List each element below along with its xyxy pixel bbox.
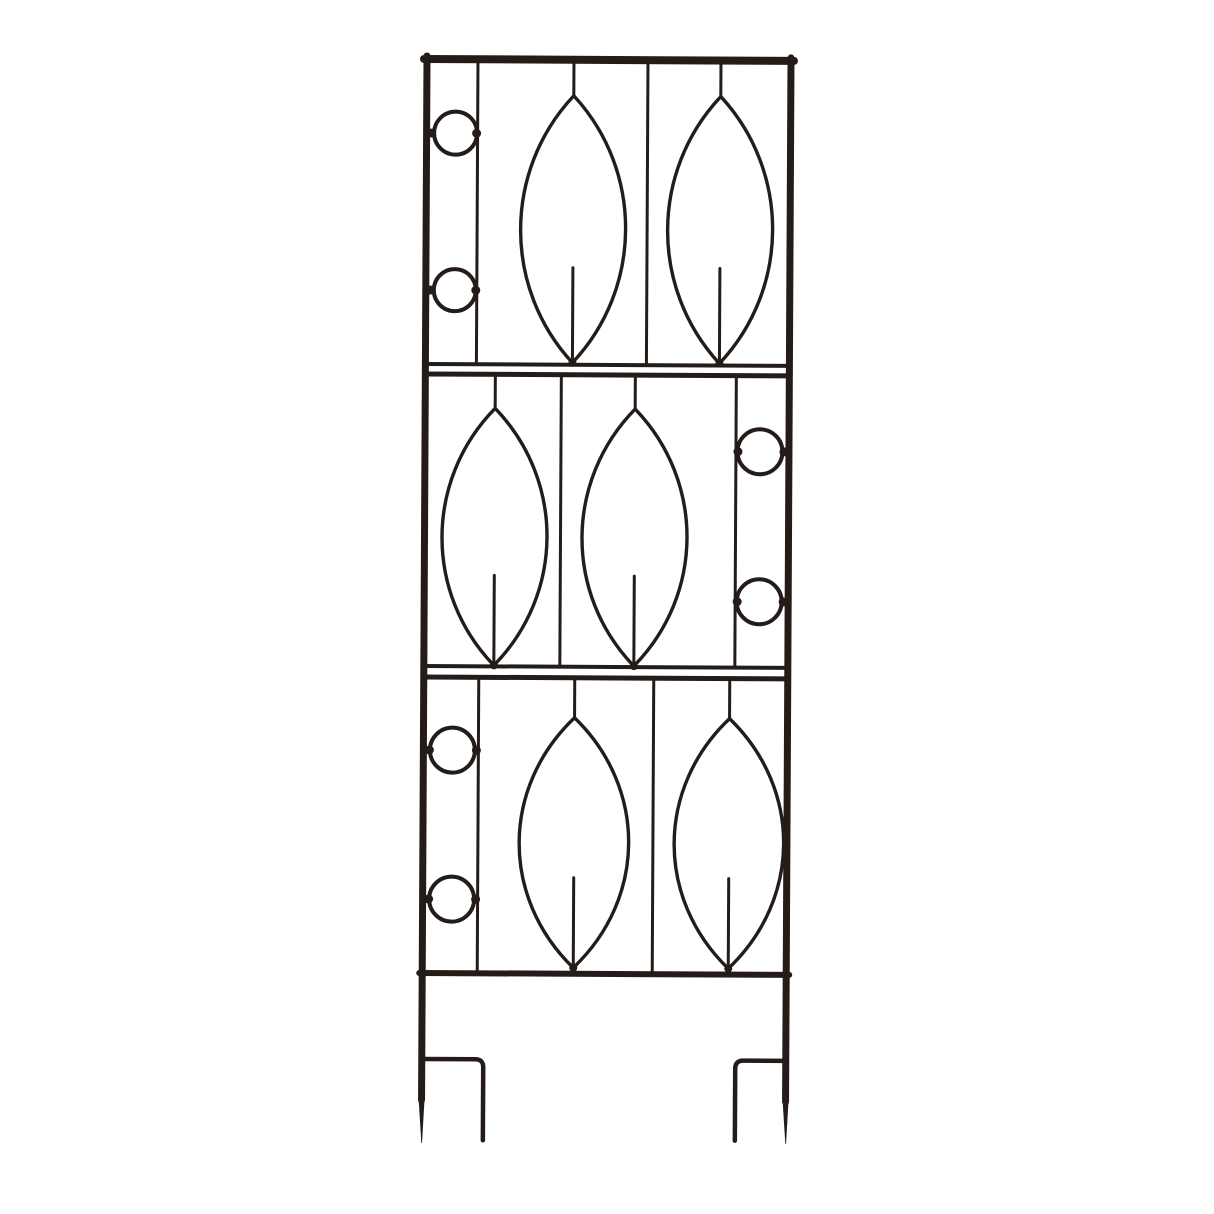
weld-dot [568, 359, 576, 367]
photo-canvas [0, 0, 1214, 1214]
frame-top-rail [424, 59, 794, 61]
panel-middle-bottom-rail [424, 666, 788, 668]
panel-middle-divider-right [735, 378, 737, 666]
trellis-photo [0, 0, 1214, 1214]
weld-dot [715, 360, 723, 368]
photo-background [0, 0, 1214, 1214]
panel-bottom-divider-right [652, 681, 654, 971]
weld-dot [426, 285, 435, 294]
weld-dot [472, 129, 481, 138]
panel-top-divider-right [646, 64, 648, 363]
weld-dot [425, 745, 434, 754]
weld-dot [427, 129, 436, 138]
panel-top-divider-left [476, 63, 478, 362]
panel-top-bottom-rail [425, 364, 789, 366]
weld-dot [733, 447, 742, 456]
weld-dot [630, 662, 638, 670]
weld-dot [471, 286, 480, 295]
panel-middle-top-rail [425, 374, 789, 376]
frame-bottom-rail [419, 973, 789, 975]
weld-dot [733, 597, 742, 606]
weld-dot [472, 746, 481, 755]
weld-dot [569, 964, 577, 972]
panel-middle-divider-left [560, 377, 562, 665]
weld-dot [779, 597, 788, 606]
panel-bottom-divider-left [477, 680, 479, 970]
weld-dot [724, 965, 732, 973]
weld-dot [424, 894, 433, 903]
weld-dot [471, 895, 480, 904]
panel-bottom-top-rail [424, 677, 788, 679]
weld-dot [779, 447, 788, 456]
weld-dot [490, 661, 498, 669]
